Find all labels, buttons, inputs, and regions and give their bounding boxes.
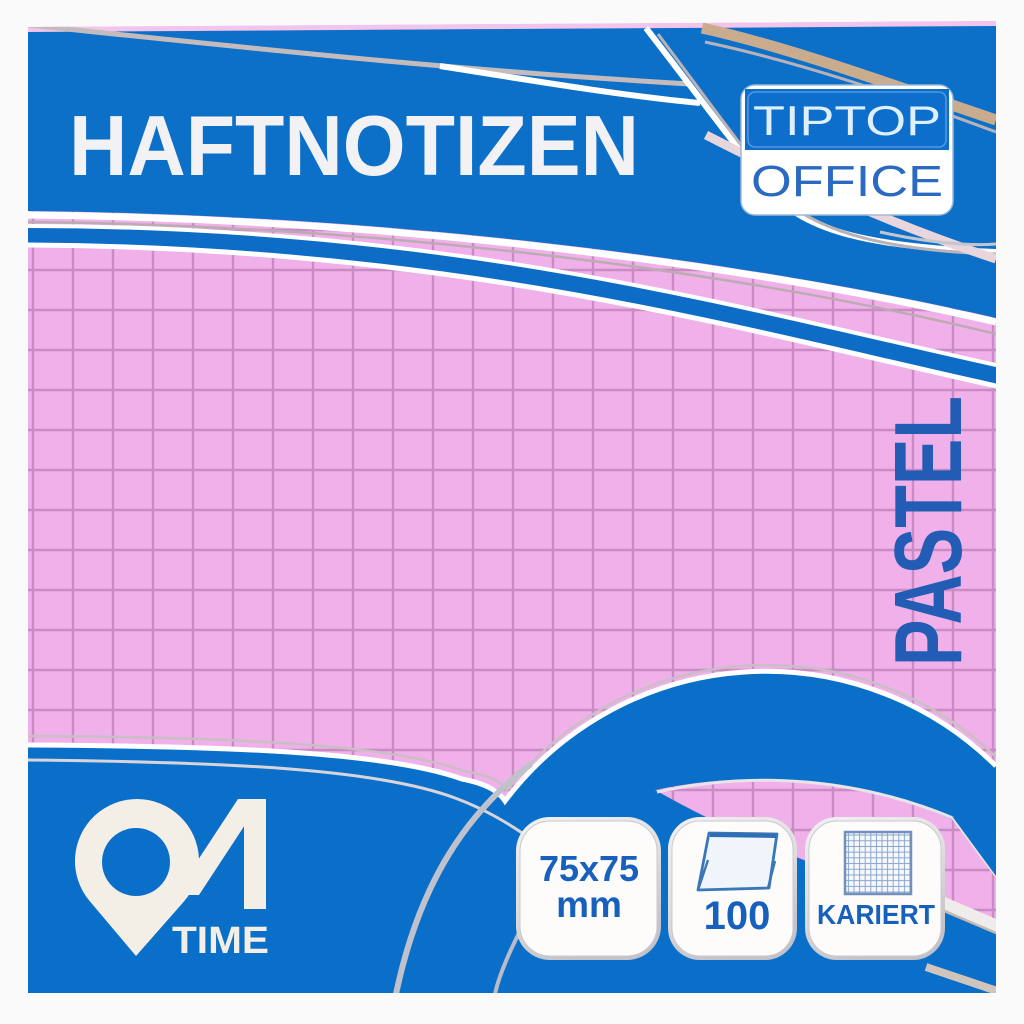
svg-text:HAFTNOTIZEN: HAFTNOTIZEN: [69, 99, 639, 194]
svg-text:75x75: 75x75: [539, 848, 639, 889]
svg-text:KARIERT: KARIERT: [817, 899, 935, 930]
svg-text:TIPTOP: TIPTOP: [753, 97, 941, 144]
svg-text:mm: mm: [556, 884, 622, 925]
svg-text:100: 100: [704, 894, 771, 938]
svg-text:PASTEL: PASTEL: [875, 396, 982, 666]
svg-text:TIME: TIME: [172, 920, 269, 962]
svg-text:OFFICE: OFFICE: [751, 157, 943, 206]
